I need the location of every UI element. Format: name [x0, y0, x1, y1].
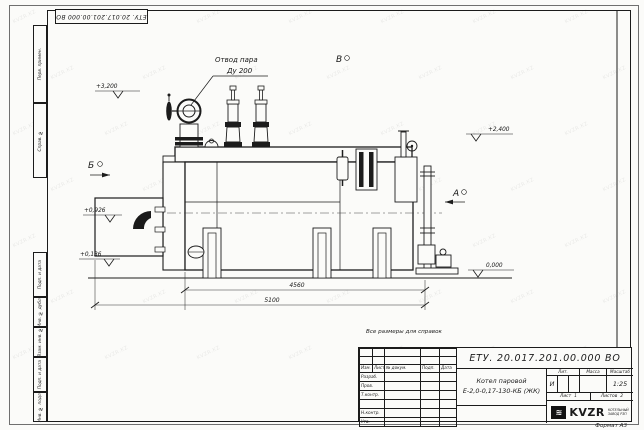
margin-box-perv-primen: Перв. примен. [33, 25, 47, 103]
row-tkontr: Т.контр. [360, 391, 385, 400]
format-label: Формат А3 [535, 423, 627, 429]
sheets-cell: Листов2 [590, 393, 633, 401]
steam-outlet-valve [166, 94, 203, 148]
dim-body-length: 4560 [289, 282, 304, 289]
lit-header: Лит. [546, 369, 579, 376]
burner-box [95, 198, 165, 256]
title-doc-number: ЕТУ. 20.017.201.00.000 ВО [456, 348, 633, 369]
empty-cell [456, 406, 546, 423]
elevation-burner: +0,926 [84, 208, 106, 214]
dome-fitting [205, 139, 218, 147]
col-doc: № докум. [385, 365, 421, 373]
boiler-body [150, 147, 442, 278]
col-data: Дата [440, 365, 457, 373]
row-utv: Утв. [360, 418, 385, 427]
reference-note: Все размеры для справок [366, 329, 442, 335]
safety-valve-2 [252, 86, 270, 147]
signature-grid: Изм. Лист № докум. Подп. Дата Разраб. Пр… [359, 348, 457, 427]
margin-box-podp-data-2: Подп. и дата [33, 357, 47, 392]
level-gauges [337, 149, 377, 190]
scale-value: 1:25 [606, 376, 633, 393]
col-izm: Изм. [360, 365, 373, 373]
massa-value [579, 376, 606, 393]
margin-box-sprav: Справ. № [33, 103, 47, 178]
company-logo-text: KVZR [569, 406, 604, 419]
title-block: Изм. Лист № докум. Подп. Дата Разраб. Пр… [358, 347, 632, 422]
dim-overall-length: 5100 [264, 297, 279, 304]
row-razrab: Разраб. [360, 373, 385, 382]
margin-box-inv-dubl: Инв. № дубл. [33, 297, 47, 327]
margin-box-vzam-inv: Взам. инв. № [33, 327, 47, 357]
sheet-cell: Лист1 [546, 393, 590, 401]
lit-value: И [546, 376, 557, 393]
elevation-top: +3,200 [96, 84, 118, 90]
elevation-right: +2,400 [488, 127, 510, 133]
drawing-sheet: KVZR.KZKVZR.KZKVZR.KZKVZR.KZKVZR.KZKVZR.… [0, 0, 644, 430]
callout-line1: Отвод пара [215, 56, 258, 64]
view-label-v: В [336, 55, 342, 65]
margin-box-inv-podl: Инв. № подл. [33, 392, 47, 422]
elevation-ground: 0,000 [486, 263, 503, 269]
view-label-b: Б [88, 161, 94, 171]
product-name: Котел паровой Е-2,0-0,17-130-КБ (ЖК) [456, 369, 546, 406]
lit-cell-2 [557, 376, 568, 393]
elevation-base: +0,136 [80, 252, 102, 258]
manhole [188, 246, 204, 258]
downcomer-and-pump [416, 166, 458, 274]
scale-header: Масштаб [606, 369, 633, 376]
lit-cell-3 [568, 376, 579, 393]
view-label-a: А [452, 189, 459, 199]
callout-line2: Ду 200 [226, 67, 253, 75]
row-prov: Пров. [360, 382, 385, 391]
company-cell: ≋ KVZR КОТЕЛЬНЫЙ ЗАВОД РЗП [546, 401, 633, 423]
safety-valve-1 [224, 86, 242, 147]
doc-number-stamp-rotated: ЕТУ. 20.017.201.00.000 ВО [55, 9, 148, 24]
row-nkontr: Н.контр. [360, 409, 385, 418]
margin-box-podp-data-1: Подп. и дата [33, 252, 47, 297]
valve-handwheel [166, 102, 172, 121]
company-logo-icon: ≋ [551, 406, 566, 419]
col-list: Лист [373, 365, 385, 373]
massa-header: Масса [579, 369, 606, 376]
company-subtitle: КОТЕЛЬНЫЙ ЗАВОД РЗП [608, 408, 629, 416]
col-podp: Подп. [421, 365, 440, 373]
